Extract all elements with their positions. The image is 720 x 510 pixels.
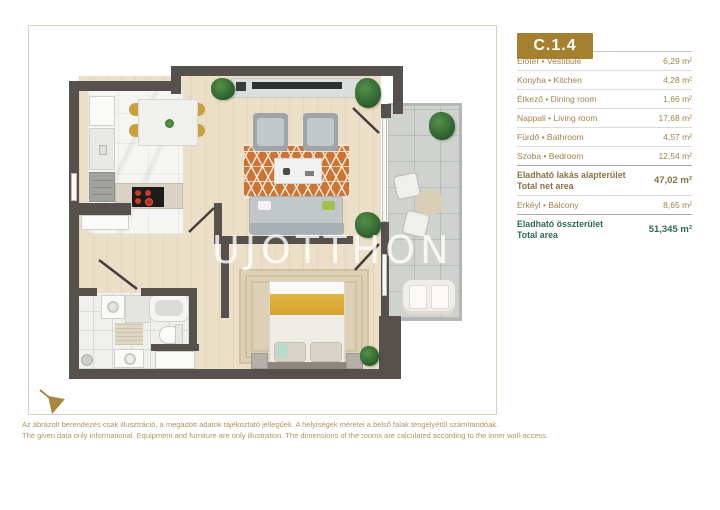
table-row: Étkező • Dining room 1,66 m² bbox=[517, 90, 692, 109]
watermark: UJOTTHON HU bbox=[212, 228, 497, 272]
door-swings bbox=[29, 26, 496, 414]
room-area: 12,54 m² bbox=[658, 151, 692, 161]
room-area: 4,28 m² bbox=[663, 75, 692, 85]
total-area-label-en: Total area bbox=[517, 230, 603, 241]
plant bbox=[360, 346, 379, 366]
room-label: Erkéyl • Balcony bbox=[517, 200, 579, 210]
disclaimer: Az ábrázolt berendezés csak illusztráció… bbox=[22, 419, 548, 441]
room-area: 4,57 m² bbox=[663, 132, 692, 142]
plant bbox=[355, 78, 381, 108]
room-label: Étkező • Dining room bbox=[517, 94, 597, 104]
disclaimer-line-hu: Az ábrázolt berendezés csak illusztráció… bbox=[22, 419, 548, 430]
total-area-row: Eladható összterület Total area 51,345 m… bbox=[517, 215, 692, 244]
disclaimer-line-en: The given data only informational. Equip… bbox=[22, 430, 548, 441]
room-label: Nappali • Living room bbox=[517, 113, 597, 123]
table-row: Fürdő • Bathroom 4,57 m² bbox=[517, 128, 692, 147]
net-area-row: Eladható lakás alapterület Total net are… bbox=[517, 166, 692, 196]
balcony-row: Erkéyl • Balcony 8,65 m² bbox=[517, 196, 692, 215]
table-row: Konyha • Kitchen 4,28 m² bbox=[517, 71, 692, 90]
net-area-label-hu: Eladható lakás alapterület bbox=[517, 170, 626, 181]
table-row: Nappali • Living room 17,68 m² bbox=[517, 109, 692, 128]
room-label: Fürdő • Bathroom bbox=[517, 132, 584, 142]
floor-plan-frame: UJOTTHON HU bbox=[28, 25, 497, 415]
plant bbox=[429, 112, 455, 140]
watermark-text-left: UJOTTHON bbox=[212, 228, 454, 272]
room-table: Előtér • Vestibule 6,29 m² Konyha • Kitc… bbox=[517, 51, 692, 244]
room-label: Szoba • Bedroom bbox=[517, 151, 583, 161]
floor-plan: UJOTTHON HU bbox=[29, 26, 496, 414]
plant bbox=[211, 78, 235, 100]
net-area-label-en: Total net area bbox=[517, 181, 626, 192]
room-area: 17,68 m² bbox=[658, 113, 692, 123]
room-area: 8,65 m² bbox=[663, 200, 692, 210]
total-area-label-hu: Eladható összterület bbox=[517, 219, 603, 230]
north-arrow-icon bbox=[37, 386, 69, 415]
watermark-separator-dots bbox=[463, 235, 470, 266]
unit-code-badge: C.1.4 bbox=[517, 33, 593, 59]
room-area: 1,66 m² bbox=[663, 94, 692, 104]
table-row: Szoba • Bedroom 12,54 m² bbox=[517, 147, 692, 166]
room-label: Konyha • Kitchen bbox=[517, 75, 582, 85]
room-area: 6,29 m² bbox=[663, 56, 692, 66]
unit-spec-table: C.1.4 Előtér • Vestibule 6,29 m² Konyha … bbox=[517, 33, 692, 244]
total-area-value: 51,345 m² bbox=[649, 224, 692, 235]
net-area-value: 47,02 m² bbox=[654, 175, 692, 186]
watermark-text-right: HU bbox=[479, 228, 497, 272]
